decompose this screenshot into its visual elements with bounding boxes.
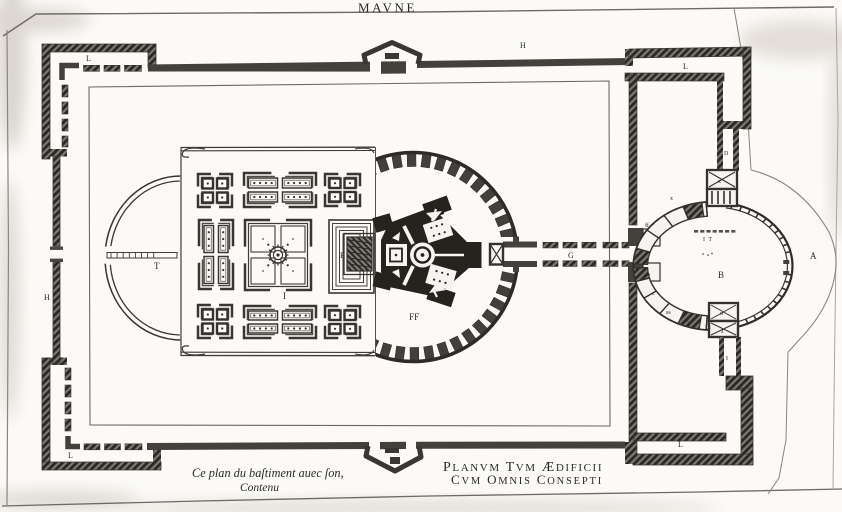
svg-text:o: o	[647, 272, 650, 278]
svg-text:x: x	[670, 196, 673, 202]
svg-text:L: L	[86, 54, 91, 63]
svg-text:c: c	[652, 291, 655, 297]
svg-text:H: H	[520, 41, 526, 50]
svg-text:A: A	[810, 251, 817, 261]
svg-text:ss: ss	[666, 310, 671, 316]
svg-text:x: x	[718, 179, 721, 185]
svg-text:PLANVM TVM ÆDIFICII: PLANVM TVM ÆDIFICII	[443, 460, 603, 475]
svg-text:H: H	[44, 293, 50, 302]
svg-text:L: L	[678, 440, 683, 449]
svg-text:o: o	[720, 311, 723, 317]
svg-text:FF: FF	[409, 312, 419, 322]
svg-text:D: D	[724, 151, 729, 157]
svg-text:L: L	[683, 62, 688, 71]
svg-text:I: I	[283, 291, 286, 301]
svg-text:T: T	[154, 261, 160, 271]
svg-text:I: I	[726, 356, 728, 362]
svg-text:x: x	[686, 318, 689, 324]
svg-text:I T: I T	[703, 237, 713, 243]
svg-text:B: B	[718, 270, 724, 280]
svg-text:Contenu: Contenu	[240, 482, 279, 494]
svg-text:L: L	[68, 451, 73, 460]
svg-text:ff: ff	[645, 222, 649, 229]
svg-text:Ce plan du baſtiment auec ſon,: Ce plan du baſtiment auec ſon,	[192, 466, 344, 480]
svg-text:G: G	[568, 251, 574, 260]
svg-text:z: z	[721, 329, 724, 335]
svg-text:F: F	[340, 251, 345, 260]
svg-text:MAVNE: MAVNE	[358, 0, 417, 15]
